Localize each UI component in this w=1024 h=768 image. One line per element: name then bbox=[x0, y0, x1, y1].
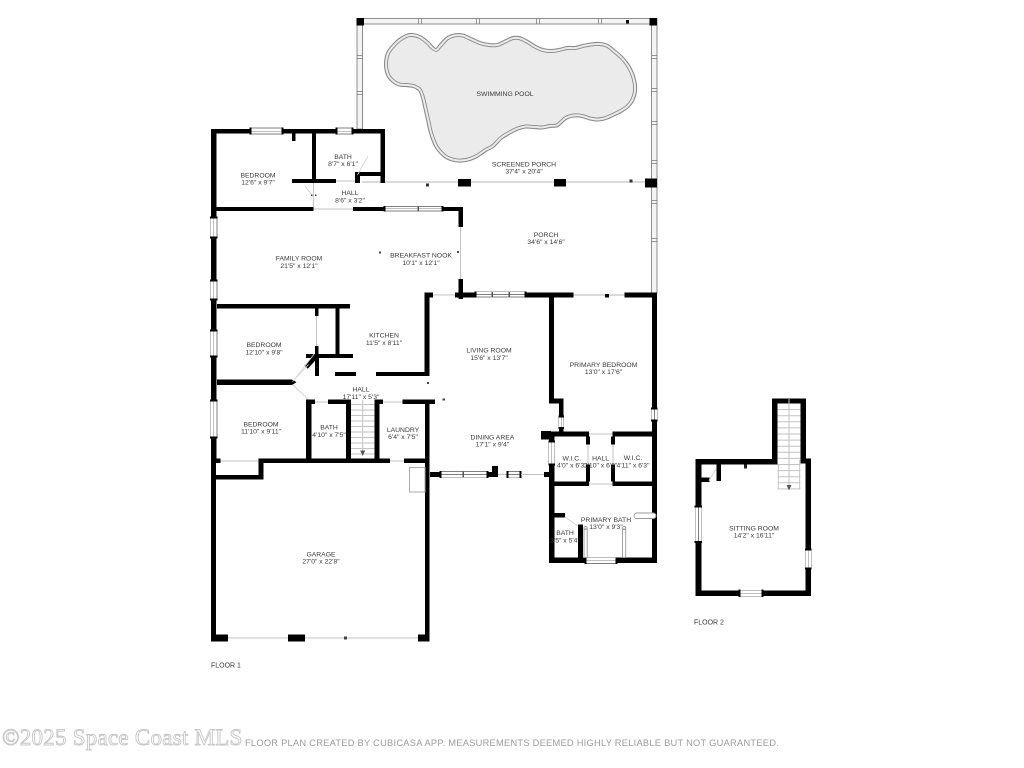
svg-text:21'5" x 12'1": 21'5" x 12'1" bbox=[280, 263, 318, 270]
svg-text:HALL: HALL bbox=[352, 387, 369, 394]
svg-text:SCREENED PORCH: SCREENED PORCH bbox=[492, 161, 556, 168]
svg-text:BATH: BATH bbox=[320, 425, 338, 432]
svg-text:12'10" x 9'8": 12'10" x 9'8" bbox=[245, 350, 283, 357]
svg-text:PRIMARY BATH: PRIMARY BATH bbox=[581, 517, 631, 524]
svg-text:13'0" x 17'6": 13'0" x 17'6" bbox=[585, 369, 623, 376]
svg-text:13'0" x 9'3": 13'0" x 9'3" bbox=[589, 524, 623, 531]
svg-text:BREAKFAST NOOK: BREAKFAST NOOK bbox=[390, 253, 452, 260]
svg-text:W.I.C.: W.I.C. bbox=[624, 455, 643, 462]
svg-text:34'6" x 14'6": 34'6" x 14'6" bbox=[527, 239, 565, 246]
svg-text:2'10" x 6'2": 2'10" x 6'2" bbox=[584, 463, 618, 470]
svg-text:BEDROOM: BEDROOM bbox=[240, 172, 275, 179]
svg-text:FLOOR PLAN CREATED BY CUBICASA: FLOOR PLAN CREATED BY CUBICASA APP. MEAS… bbox=[245, 738, 779, 748]
svg-text:SITTING ROOM: SITTING ROOM bbox=[729, 525, 779, 532]
svg-text:BATH: BATH bbox=[556, 530, 574, 537]
svg-text:BATH: BATH bbox=[334, 154, 352, 161]
svg-text:LAUNDRY: LAUNDRY bbox=[387, 427, 420, 434]
svg-text:10'1" x 12'1": 10'1" x 12'1" bbox=[402, 260, 440, 267]
svg-text:14'2" x 16'11": 14'2" x 16'11" bbox=[734, 533, 775, 540]
svg-text:KITCHEN: KITCHEN bbox=[369, 333, 399, 340]
svg-text:3'5" x 5'4": 3'5" x 5'4" bbox=[550, 538, 580, 545]
svg-text:8'6" x 3'2": 8'6" x 3'2" bbox=[335, 197, 365, 204]
svg-text:DINING AREA: DINING AREA bbox=[470, 434, 514, 441]
svg-text:12'6" x 9'7": 12'6" x 9'7" bbox=[241, 180, 275, 187]
svg-text:15'6" x 13'7": 15'6" x 13'7" bbox=[470, 355, 508, 362]
svg-text:11'10" x 9'11": 11'10" x 9'11" bbox=[241, 429, 282, 436]
svg-text:27'0" x 22'8": 27'0" x 22'8" bbox=[302, 559, 340, 566]
svg-text:11'5" x 8'11": 11'5" x 8'11" bbox=[366, 340, 403, 347]
svg-text:4'10" x 7'5": 4'10" x 7'5" bbox=[312, 432, 346, 439]
svg-text:PRIMARY BEDROOM: PRIMARY BEDROOM bbox=[570, 362, 638, 369]
svg-text:FLOOR 1: FLOOR 1 bbox=[211, 663, 241, 670]
svg-text:HALL: HALL bbox=[341, 190, 358, 197]
svg-text:LIVING ROOM: LIVING ROOM bbox=[466, 348, 512, 355]
svg-text:37'4" x 20'4": 37'4" x 20'4" bbox=[505, 169, 543, 176]
svg-text:8'7" x 6'1": 8'7" x 6'1" bbox=[328, 161, 358, 168]
svg-text:17'1" x 9'4": 17'1" x 9'4" bbox=[476, 442, 510, 449]
svg-text:4'0" x 6'3": 4'0" x 6'3" bbox=[557, 463, 587, 470]
svg-text:©2025 Space Coast MLS: ©2025 Space Coast MLS bbox=[2, 725, 243, 750]
svg-text:6'4" x 7'5": 6'4" x 7'5" bbox=[388, 434, 418, 441]
svg-text:PORCH: PORCH bbox=[534, 232, 559, 239]
svg-text:4'11" x 6'3": 4'11" x 6'3" bbox=[617, 463, 651, 470]
svg-text:FLOOR 2: FLOOR 2 bbox=[694, 620, 724, 627]
svg-text:HALL: HALL bbox=[592, 455, 609, 462]
svg-text:BEDROOM: BEDROOM bbox=[246, 342, 281, 349]
svg-text:BEDROOM: BEDROOM bbox=[243, 421, 278, 428]
svg-text:FAMILY ROOM: FAMILY ROOM bbox=[276, 256, 323, 263]
svg-text:GARAGE: GARAGE bbox=[306, 551, 336, 558]
svg-text:W.I.C.: W.I.C. bbox=[563, 455, 582, 462]
svg-text:SWIMMING POOL: SWIMMING POOL bbox=[476, 91, 533, 98]
